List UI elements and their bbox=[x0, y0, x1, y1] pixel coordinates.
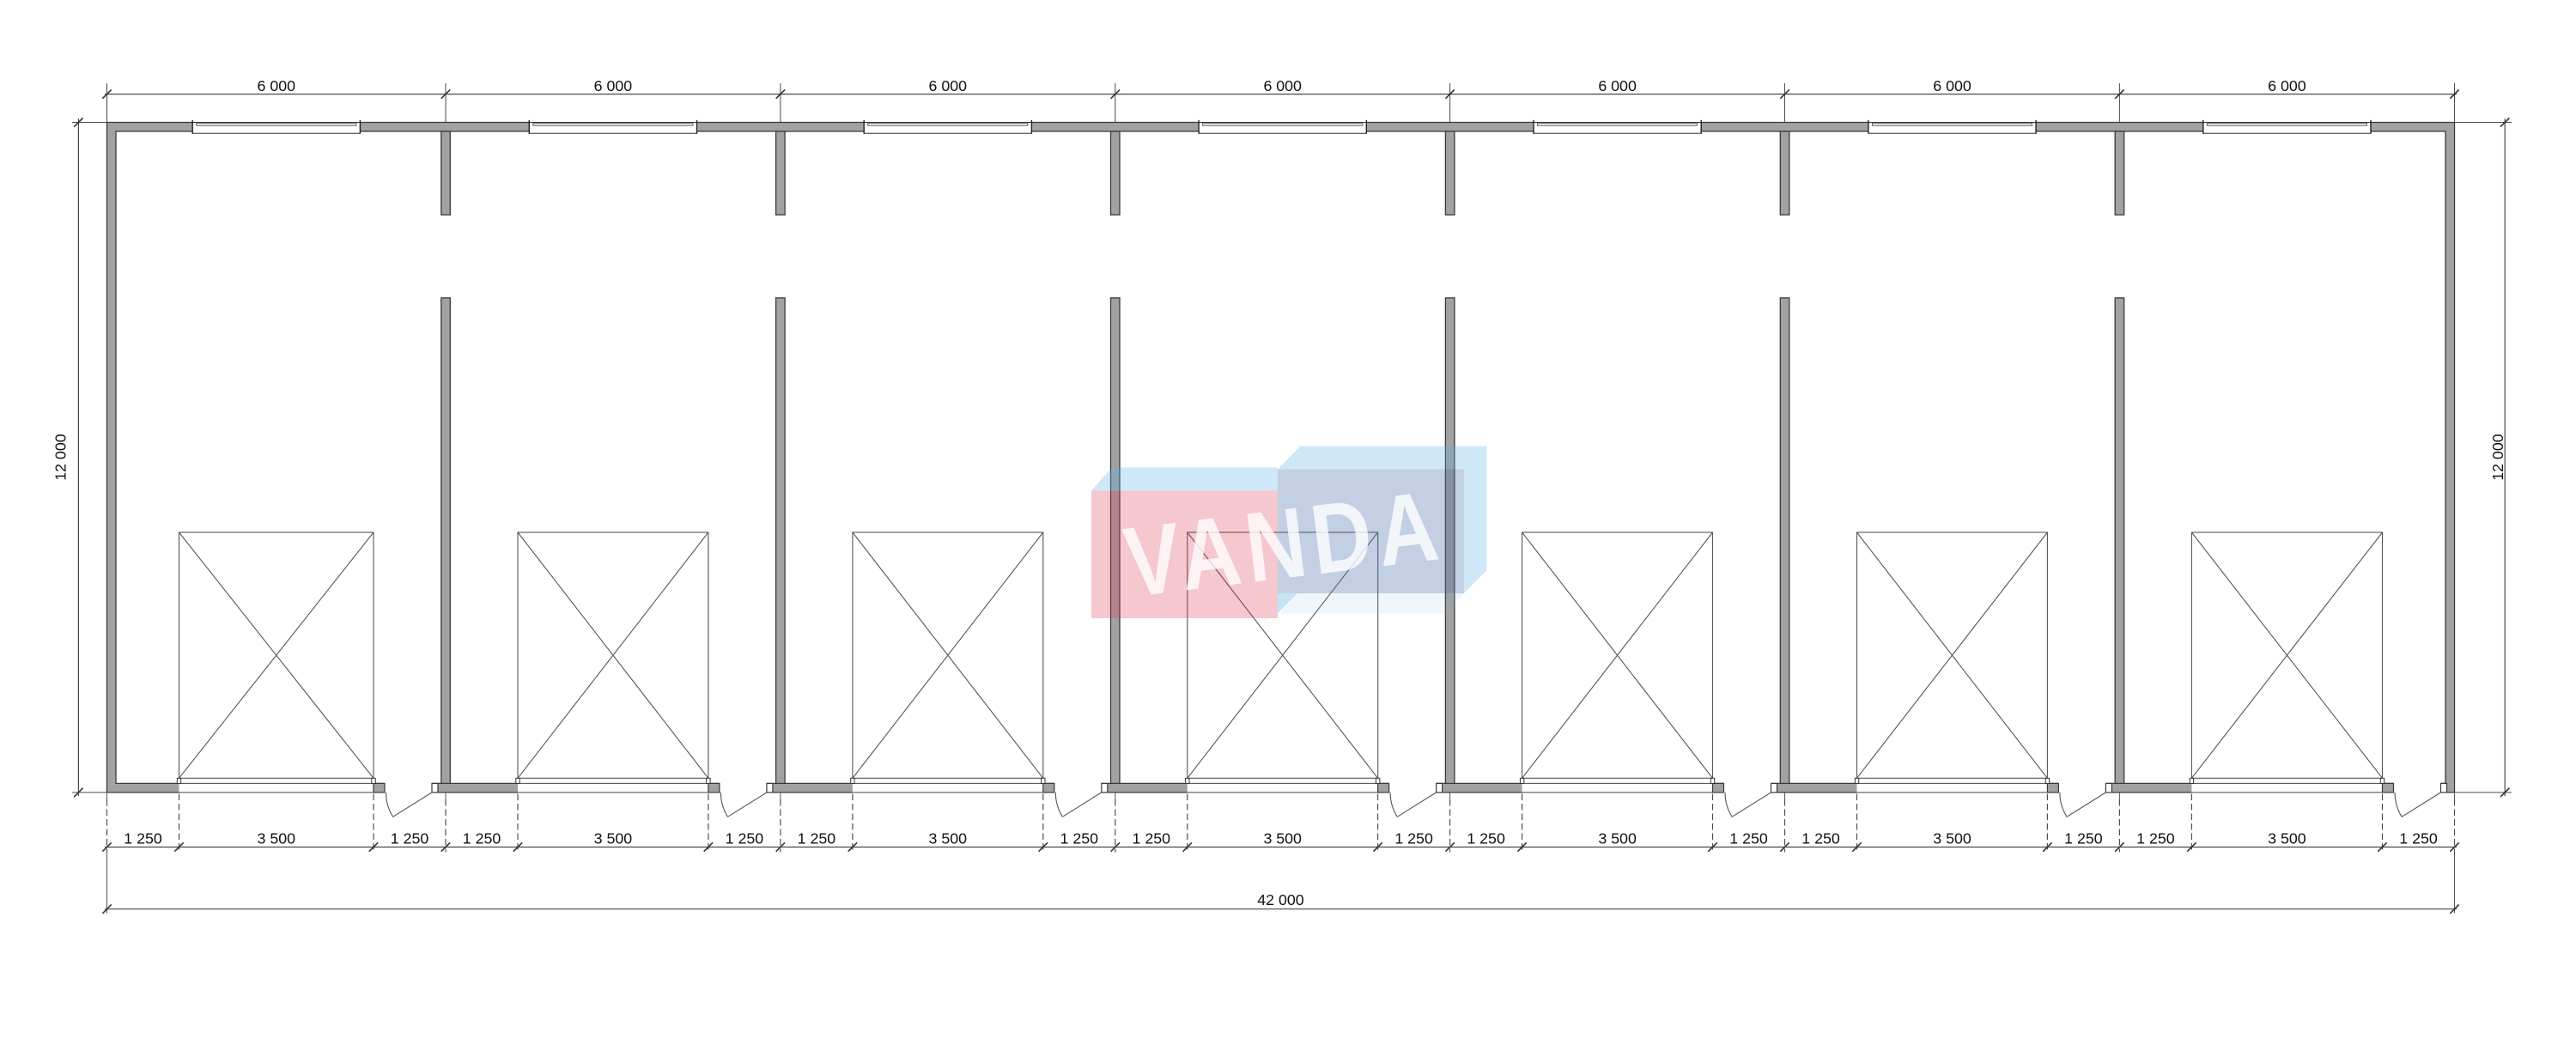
svg-text:1 250: 1 250 bbox=[2064, 829, 2103, 847]
svg-text:1 250: 1 250 bbox=[798, 829, 836, 847]
svg-text:3 500: 3 500 bbox=[594, 829, 633, 847]
svg-text:1 250: 1 250 bbox=[124, 829, 162, 847]
svg-text:3 500: 3 500 bbox=[1933, 829, 1971, 847]
svg-text:12 000: 12 000 bbox=[2489, 434, 2506, 480]
svg-text:3 500: 3 500 bbox=[258, 829, 296, 847]
svg-text:3 500: 3 500 bbox=[1598, 829, 1637, 847]
svg-text:1 250: 1 250 bbox=[1729, 829, 1768, 847]
svg-text:6 000: 6 000 bbox=[929, 77, 968, 94]
svg-text:1 250: 1 250 bbox=[1060, 829, 1099, 847]
svg-text:6 000: 6 000 bbox=[2268, 77, 2306, 94]
svg-text:6 000: 6 000 bbox=[258, 77, 296, 94]
svg-text:1 250: 1 250 bbox=[2136, 829, 2175, 847]
svg-text:6 000: 6 000 bbox=[594, 77, 633, 94]
svg-text:6 000: 6 000 bbox=[1933, 77, 1971, 94]
svg-text:12 000: 12 000 bbox=[52, 434, 70, 480]
svg-text:1 250: 1 250 bbox=[1133, 829, 1171, 847]
svg-text:6 000: 6 000 bbox=[1263, 77, 1302, 94]
svg-text:1 250: 1 250 bbox=[726, 829, 764, 847]
svg-text:1 250: 1 250 bbox=[463, 829, 501, 847]
svg-text:1 250: 1 250 bbox=[2399, 829, 2438, 847]
svg-text:1 250: 1 250 bbox=[1467, 829, 1505, 847]
svg-text:6 000: 6 000 bbox=[1598, 77, 1637, 94]
svg-text:1 250: 1 250 bbox=[1801, 829, 1840, 847]
svg-text:1 250: 1 250 bbox=[391, 829, 429, 847]
svg-text:1 250: 1 250 bbox=[1394, 829, 1433, 847]
svg-text:3 500: 3 500 bbox=[929, 829, 968, 847]
svg-text:42 000: 42 000 bbox=[1257, 891, 1303, 908]
svg-text:3 500: 3 500 bbox=[2268, 829, 2306, 847]
svg-text:3 500: 3 500 bbox=[1263, 829, 1302, 847]
